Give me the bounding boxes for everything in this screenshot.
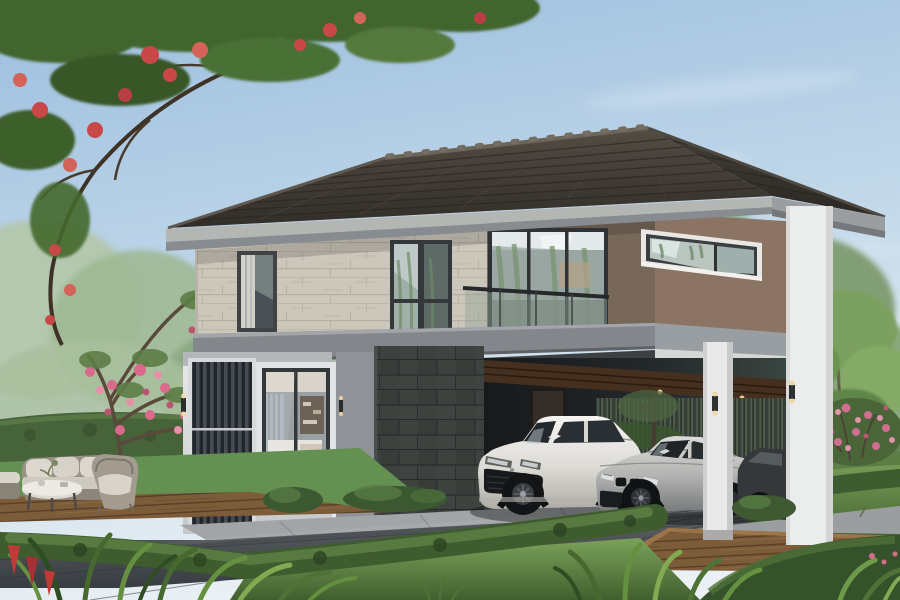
house-rendering — [0, 0, 900, 600]
ottoman — [0, 472, 20, 499]
window-upper-left — [234, 251, 280, 337]
wall-sconce-column — [712, 392, 718, 416]
rendering-canvas — [0, 0, 900, 600]
wall-sconce-pillar — [789, 381, 795, 404]
corner-pillar — [786, 206, 833, 545]
wall-sconce-entry — [181, 394, 186, 417]
wall-sconce-gray-wall — [339, 396, 343, 416]
